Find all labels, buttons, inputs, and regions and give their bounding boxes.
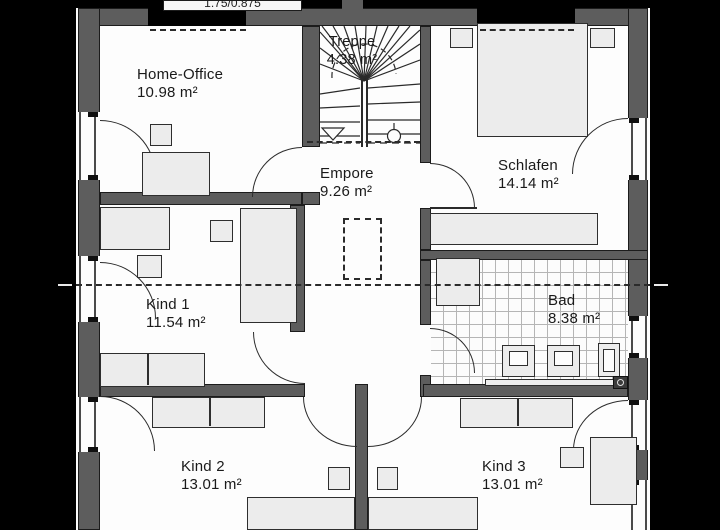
side-table-kind1: [137, 255, 162, 278]
bed-kind2: [247, 497, 355, 530]
door-leaf-schlafen: [430, 207, 477, 209]
room-area: 13.01 m²: [181, 476, 242, 494]
floor-drain-icon: [613, 376, 628, 389]
section-line-tick-right: [654, 284, 668, 286]
room-name: Kind 2: [181, 458, 242, 476]
nightstand-left: [450, 28, 473, 48]
window-kind1: [76, 256, 100, 322]
wardrobe-kind3: [460, 398, 573, 428]
desk-kind3: [590, 437, 637, 505]
room-label-bad: Bad 8.38 m²: [548, 292, 600, 328]
sink-right: [547, 345, 580, 377]
chair-kind1: [210, 220, 233, 242]
dimension-label: 1.75/0.875: [164, 0, 301, 10]
room-name: Treppe: [310, 33, 394, 51]
nightstand-kind2: [328, 467, 350, 490]
room-label-empore: Empore 9.26 m²: [320, 165, 374, 201]
room-name: Kind 1: [146, 296, 206, 314]
room-area: 9.26 m²: [320, 183, 374, 201]
room-area: 11.54 m²: [146, 314, 206, 332]
wall-corner-block: [302, 192, 320, 205]
room-area: 4.38 m²: [310, 51, 394, 69]
bed-kind1: [240, 208, 297, 323]
room-name: Home-Office: [137, 66, 223, 84]
window-kind2: [76, 397, 100, 452]
stair-cut-line: [307, 141, 420, 143]
nightstand-kind3: [377, 467, 398, 490]
sink-left: [502, 345, 535, 377]
room-area: 10.98 m²: [137, 84, 223, 102]
stair-direction-icon: [322, 128, 344, 140]
double-bed: [477, 23, 588, 137]
room-label-kind3: Kind 3 13.01 m²: [482, 458, 543, 494]
room-name: Schlafen: [498, 157, 559, 175]
window-bad: [628, 316, 650, 358]
room-name: Empore: [320, 165, 374, 183]
floor-plan: 1.75/0.875: [0, 0, 720, 530]
room-area: 14.14 m²: [498, 175, 559, 193]
window-homeoffice: [76, 112, 100, 180]
room-area: 13.01 m²: [482, 476, 543, 494]
room-label-kind2: Kind 2 13.01 m²: [181, 458, 242, 494]
shower: [436, 258, 480, 306]
nightstand-right: [590, 28, 615, 48]
room-area: 8.38 m²: [548, 310, 600, 328]
chair-homeoffice: [150, 124, 172, 146]
wall-treppe-east: [420, 26, 431, 163]
window-schlafen: [628, 118, 650, 180]
room-label-treppe: Treppe 4.38 m²: [310, 33, 394, 69]
section-line: [76, 284, 650, 286]
bath-shelf: [485, 379, 626, 386]
room-label-home-office: Home-Office 10.98 m²: [137, 66, 223, 102]
section-line-tick-left: [58, 284, 72, 286]
room-label-kind1: Kind 1 11.54 m²: [146, 296, 206, 332]
chimney-block: [342, 0, 363, 10]
roof-line-homeoffice: [150, 29, 246, 31]
desk-kind1: [100, 207, 170, 250]
room-name: Kind 3: [482, 458, 543, 476]
toilet: [598, 343, 620, 377]
room-name: Bad: [548, 292, 600, 310]
chair-kind3: [560, 447, 584, 468]
wardrobe-schlafen: [430, 213, 598, 245]
desk-homeoffice: [142, 152, 210, 196]
wardrobe-kind2: [152, 397, 265, 428]
wardrobe-kind1: [100, 353, 205, 387]
empore-void-outline: [343, 218, 382, 280]
bed-kind3: [368, 497, 478, 530]
roof-line-schlafen: [480, 29, 574, 31]
dimension-label-box: 1.75/0.875: [163, 0, 302, 11]
room-label-schlafen: Schlafen 14.14 m²: [498, 157, 559, 193]
wall-empore-bad-upper: [420, 260, 431, 325]
